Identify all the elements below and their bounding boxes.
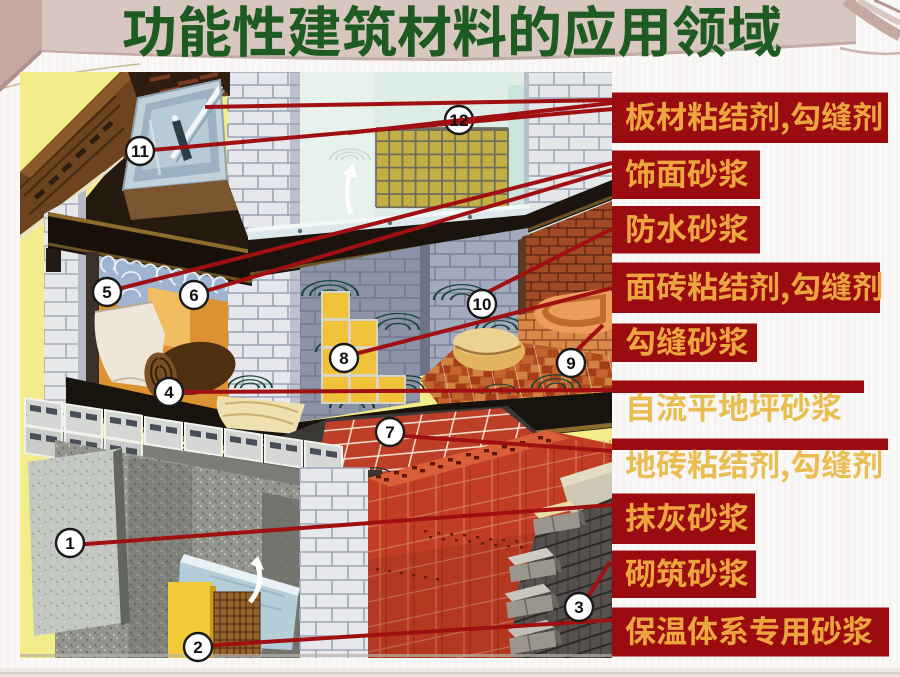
- svg-text:11: 11: [131, 142, 149, 161]
- svg-text:1: 1: [65, 534, 74, 553]
- svg-text:3: 3: [574, 598, 583, 617]
- svg-text:10: 10: [473, 295, 492, 314]
- svg-text:2: 2: [193, 638, 202, 657]
- svg-text:12: 12: [450, 111, 469, 130]
- svg-text:9: 9: [566, 354, 575, 373]
- svg-text:6: 6: [189, 286, 198, 305]
- svg-text:8: 8: [339, 349, 348, 368]
- svg-text:5: 5: [102, 283, 111, 302]
- svg-text:7: 7: [385, 423, 394, 442]
- svg-text:4: 4: [164, 383, 174, 402]
